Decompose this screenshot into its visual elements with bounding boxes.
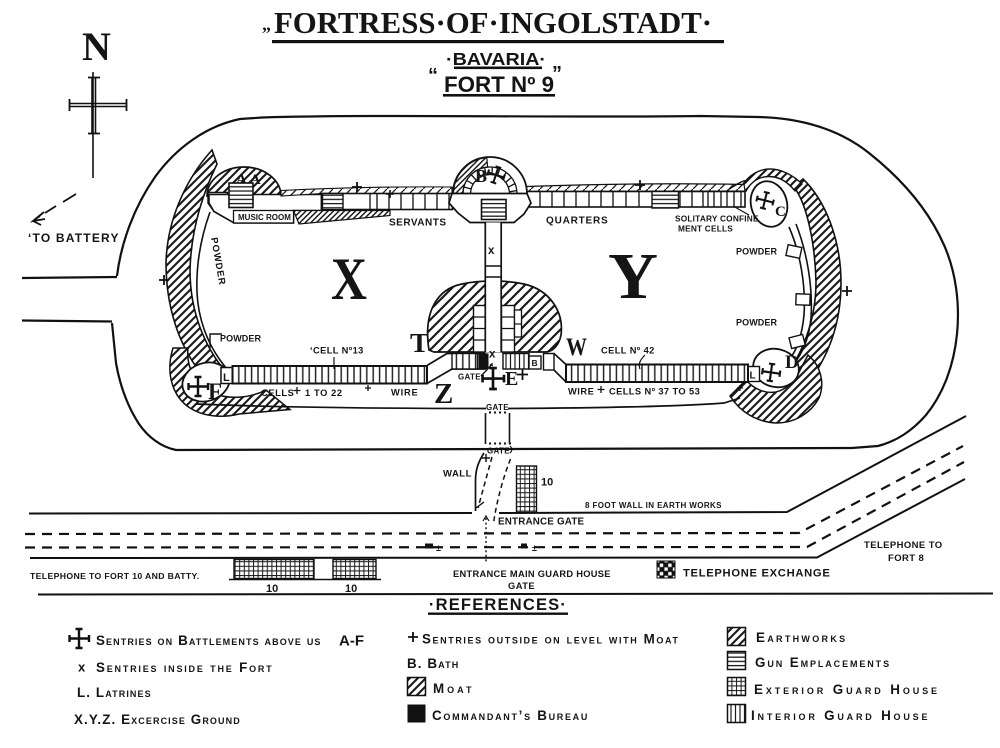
svg-text:POWDER: POWDER: [736, 247, 778, 257]
svg-text:TELEPHONE TO: TELEPHONE TO: [864, 540, 943, 551]
svg-text:10: 10: [345, 583, 357, 595]
svg-text:WIRE: WIRE: [568, 387, 594, 397]
svg-text:W: W: [566, 334, 587, 361]
svg-text:POWDER: POWDER: [736, 318, 778, 328]
svg-text:Sentries inside the Fort: Sentries inside the Fort: [96, 660, 273, 675]
svg-text:D: D: [785, 352, 799, 373]
svg-text:GATE: GATE: [487, 447, 510, 456]
svg-text:±: ±: [532, 543, 537, 553]
svg-text:Commandant’s Bureau: Commandant’s Bureau: [432, 708, 589, 723]
svg-text:Gun Emplacements: Gun Emplacements: [755, 655, 891, 670]
svg-text:MUSIC ROOM: MUSIC ROOM: [238, 213, 291, 222]
svg-text:10: 10: [541, 477, 553, 489]
svg-text:1 TO 22: 1 TO 22: [305, 388, 343, 398]
svg-text:Exterior Guard House: Exterior Guard House: [754, 682, 940, 697]
svg-text:CELLS Nº 37 TO 53: CELLS Nº 37 TO 53: [609, 387, 700, 397]
svg-text:B: B: [475, 166, 487, 186]
svg-text:‘TO BATTERY: ‘TO BATTERY: [28, 231, 120, 245]
svg-text:x: x: [78, 660, 86, 675]
svg-text:WIRE: WIRE: [391, 388, 418, 398]
svg-text:·REFERENCES·: ·REFERENCES·: [429, 596, 567, 614]
svg-text:ENTRANCE GATE: ENTRANCE GATE: [498, 517, 585, 528]
svg-text:TELEPHONE EXCHANGE: TELEPHONE EXCHANGE: [683, 568, 831, 580]
svg-text:TELEPHONE TO FORT 10 AND BATTY: TELEPHONE TO FORT 10 AND BATTY.: [30, 571, 200, 581]
svg-text:CELL Nº 42: CELL Nº 42: [601, 346, 655, 356]
svg-text:SERVANTS: SERVANTS: [389, 218, 447, 229]
svg-text:‘CELL Nº13: ‘CELL Nº13: [310, 346, 364, 356]
svg-text:8 FOOT WALL IN EARTH WORKS: 8 FOOT WALL IN EARTH WORKS: [585, 501, 722, 510]
svg-text:10: 10: [266, 583, 278, 595]
svg-text:X: X: [331, 246, 367, 312]
svg-text:L: L: [223, 372, 230, 384]
svg-text:GATE: GATE: [486, 403, 509, 412]
svg-text:Sentries on Battlements above: Sentries on Battlements above us: [96, 633, 322, 648]
svg-text:FORT 8: FORT 8: [888, 553, 924, 564]
svg-text:GATE: GATE: [458, 373, 481, 382]
svg-text:Y: Y: [608, 240, 658, 313]
svg-text:CELLS: CELLS: [261, 388, 294, 398]
svg-text:”: ”: [552, 63, 562, 85]
svg-text:·BAVARIA·: ·BAVARIA·: [446, 49, 546, 69]
svg-text:GATE: GATE: [508, 581, 535, 591]
svg-text:FORT Nº 9: FORT Nº 9: [444, 72, 554, 97]
svg-text:Moat: Moat: [433, 681, 474, 696]
svg-text:WALL: WALL: [443, 469, 472, 480]
svg-text:SOLITARY CONFINE: SOLITARY CONFINE: [675, 214, 759, 224]
svg-text:MENT CELLS: MENT CELLS: [678, 224, 733, 234]
svg-text:L. Latrines: L. Latrines: [77, 685, 152, 700]
svg-text:QUARTERS: QUARTERS: [546, 216, 609, 227]
svg-text:A-F: A-F: [339, 633, 364, 650]
svg-text:T: T: [410, 328, 429, 358]
svg-text:B. Bath: B. Bath: [407, 656, 459, 671]
svg-text:Earthworks: Earthworks: [756, 630, 847, 645]
svg-text:x: x: [488, 245, 495, 257]
svg-text:Sentries outside on level with: Sentries outside on level with Moat: [422, 632, 680, 647]
svg-text:ENTRANCE MAIN GUARD HOUSE: ENTRANCE MAIN GUARD HOUSE: [453, 569, 611, 579]
svg-text:Interior Guard House: Interior Guard House: [751, 708, 930, 723]
svg-text:B: B: [532, 358, 538, 368]
svg-text:E: E: [505, 368, 518, 390]
svg-text:POWDER: POWDER: [220, 334, 262, 344]
svg-text:Z: Z: [434, 378, 453, 410]
svg-text:F: F: [208, 379, 222, 404]
svg-text:x: x: [489, 349, 496, 361]
svg-text:„: „: [262, 14, 271, 34]
svg-text:FORTRESS·OF·INGOLSTADT·: FORTRESS·OF·INGOLSTADT·: [274, 5, 712, 40]
svg-text:“: “: [428, 65, 438, 87]
svg-text:X.Y.Z. Excercise Ground: X.Y.Z. Excercise Ground: [74, 712, 241, 727]
svg-text:±: ±: [436, 543, 441, 553]
svg-text:N: N: [82, 24, 111, 69]
svg-text:C: C: [775, 204, 786, 220]
svg-text:L: L: [750, 371, 756, 382]
